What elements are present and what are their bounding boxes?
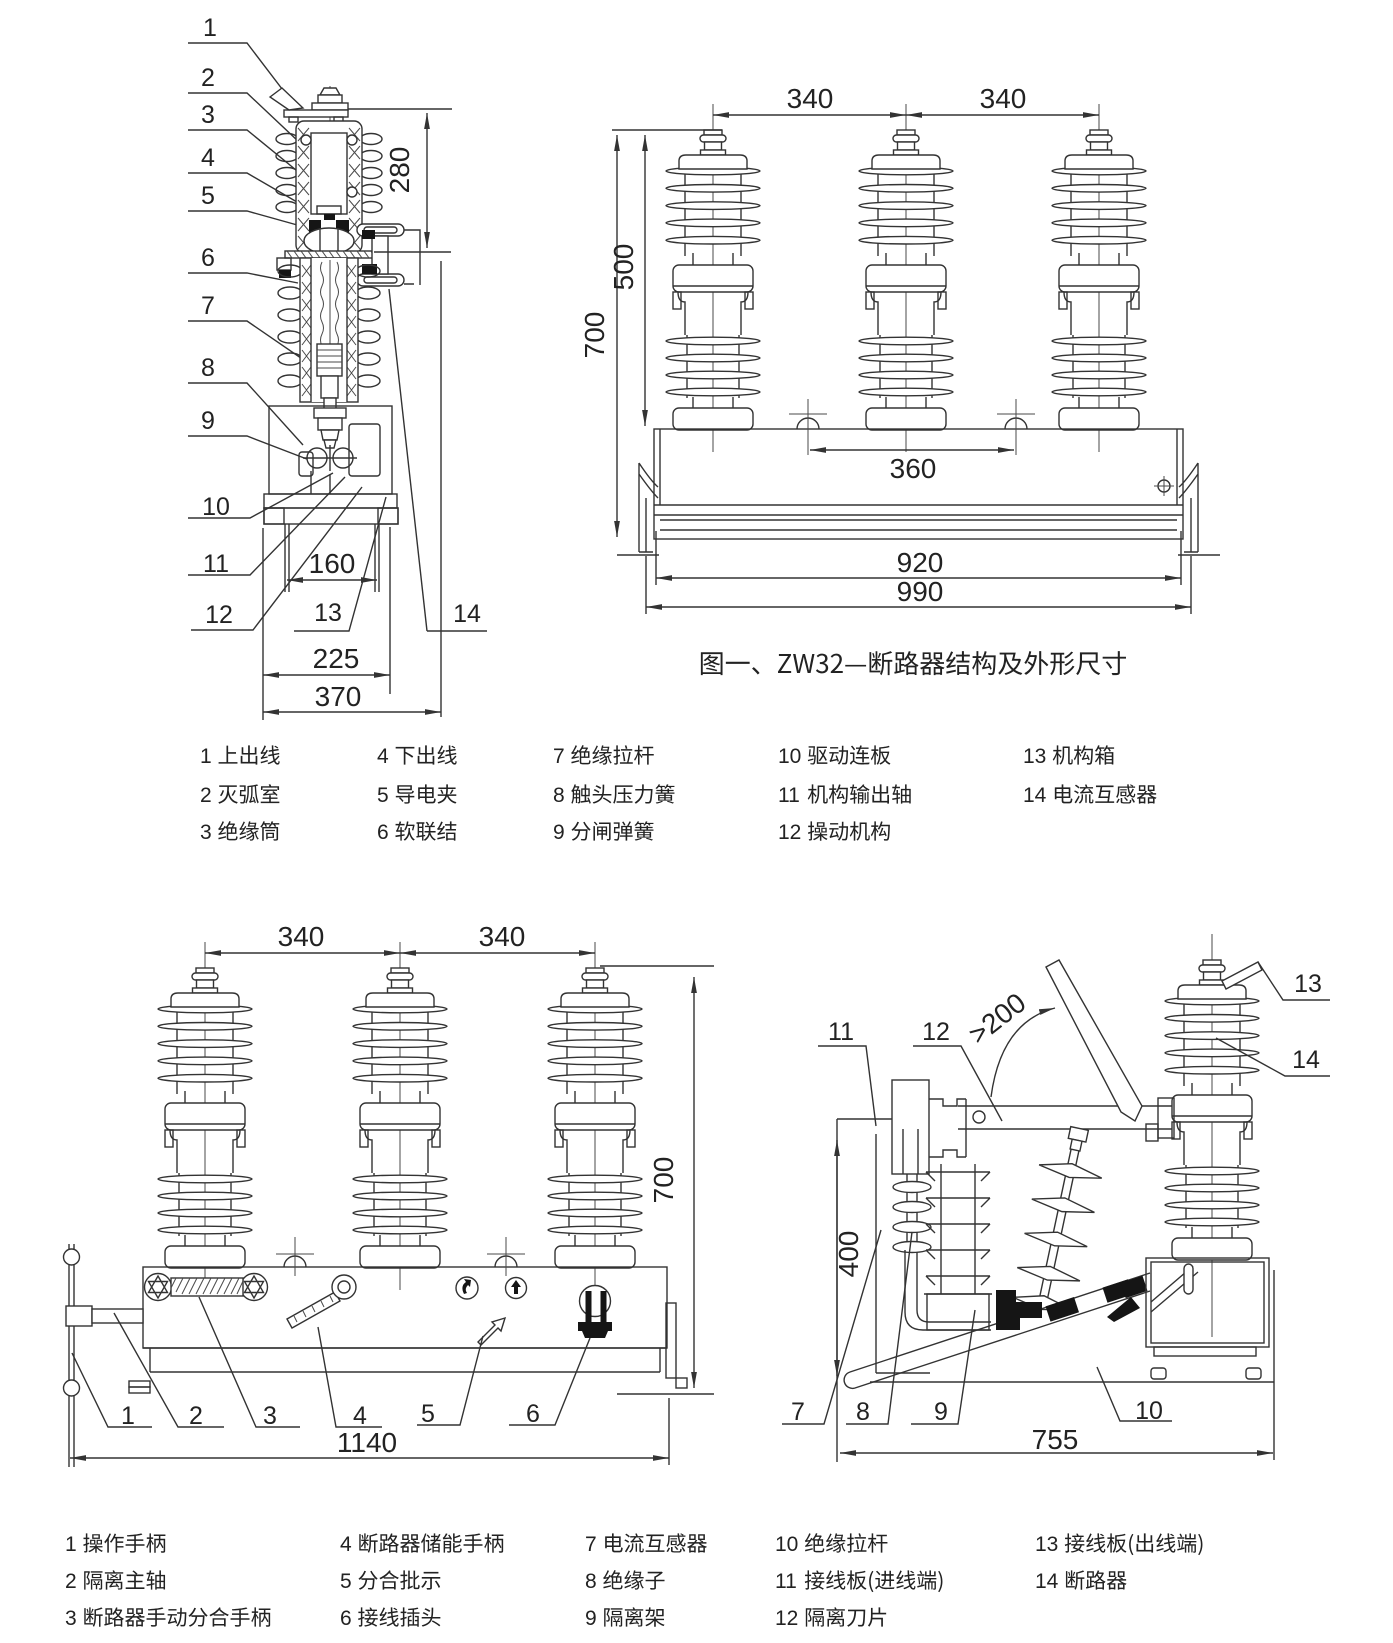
svg-text:1140: 1140 (337, 1427, 397, 1458)
svg-text:13: 13 (1023, 745, 1046, 768)
svg-text:8: 8 (585, 1570, 597, 1593)
svg-text:340: 340 (787, 83, 834, 114)
svg-text:13: 13 (314, 599, 342, 627)
svg-text:14: 14 (453, 600, 481, 628)
svg-text:14: 14 (1035, 1570, 1059, 1593)
svg-text:9: 9 (934, 1398, 948, 1426)
svg-text:6: 6 (377, 821, 389, 844)
svg-text:11: 11 (775, 1570, 797, 1593)
svg-text:10: 10 (778, 745, 801, 768)
svg-text:1: 1 (65, 1533, 77, 1556)
svg-text:360: 360 (890, 453, 937, 484)
svg-text:11: 11 (778, 784, 800, 807)
svg-text:7: 7 (791, 1398, 805, 1426)
svg-text:8: 8 (201, 354, 215, 382)
svg-text:14: 14 (1023, 784, 1047, 807)
svg-text:8: 8 (553, 784, 565, 807)
svg-text:10: 10 (202, 493, 230, 521)
svg-text:8: 8 (856, 1398, 870, 1426)
svg-text:4: 4 (340, 1533, 352, 1556)
svg-text:13: 13 (1035, 1533, 1058, 1556)
svg-text:3: 3 (201, 101, 215, 129)
svg-text:3: 3 (65, 1607, 77, 1630)
svg-text:6: 6 (201, 244, 215, 272)
svg-text:6: 6 (526, 1400, 540, 1428)
svg-text:160: 160 (309, 548, 356, 579)
svg-text:10: 10 (775, 1533, 798, 1556)
svg-text:13: 13 (1294, 970, 1322, 998)
svg-text:4: 4 (377, 745, 389, 768)
svg-text:5: 5 (201, 182, 215, 210)
svg-text:755: 755 (1032, 1424, 1079, 1455)
svg-text:400: 400 (833, 1231, 864, 1278)
svg-text:7: 7 (585, 1533, 597, 1556)
svg-text:7: 7 (201, 292, 215, 320)
svg-text:4: 4 (353, 1402, 367, 1430)
svg-text:370: 370 (315, 681, 362, 712)
svg-text:6: 6 (340, 1607, 352, 1630)
svg-text:700: 700 (579, 312, 610, 359)
svg-text:340: 340 (479, 921, 526, 952)
svg-text:500: 500 (608, 244, 639, 291)
svg-text:1: 1 (121, 1402, 135, 1430)
svg-text:340: 340 (980, 83, 1027, 114)
svg-text:340: 340 (278, 921, 325, 952)
svg-text:5: 5 (377, 784, 389, 807)
svg-text:12: 12 (778, 821, 801, 844)
svg-text:12: 12 (205, 601, 233, 629)
svg-text:4: 4 (201, 144, 215, 172)
svg-text:920: 920 (897, 547, 944, 578)
svg-text:3: 3 (200, 821, 212, 844)
svg-text:280: 280 (384, 147, 415, 194)
svg-text:5: 5 (340, 1570, 352, 1593)
svg-text:11: 11 (203, 550, 229, 578)
svg-text:9: 9 (585, 1607, 597, 1630)
svg-text:990: 990 (897, 576, 944, 607)
svg-text:9: 9 (201, 407, 215, 435)
svg-text:9: 9 (553, 821, 565, 844)
svg-text:2: 2 (65, 1570, 77, 1593)
svg-text:11: 11 (828, 1018, 854, 1046)
svg-text:700: 700 (648, 1157, 679, 1204)
svg-text:1: 1 (203, 14, 217, 42)
svg-text:2: 2 (201, 64, 215, 92)
svg-text:2: 2 (189, 1402, 203, 1430)
svg-text:12: 12 (775, 1607, 798, 1630)
svg-text:5: 5 (421, 1400, 435, 1428)
svg-text:225: 225 (313, 643, 360, 674)
svg-text:2: 2 (200, 784, 212, 807)
svg-text:3: 3 (263, 1402, 277, 1430)
svg-text:1: 1 (200, 745, 212, 768)
svg-text:7: 7 (553, 745, 565, 768)
svg-text:12: 12 (922, 1018, 950, 1046)
svg-text:14: 14 (1292, 1046, 1320, 1074)
